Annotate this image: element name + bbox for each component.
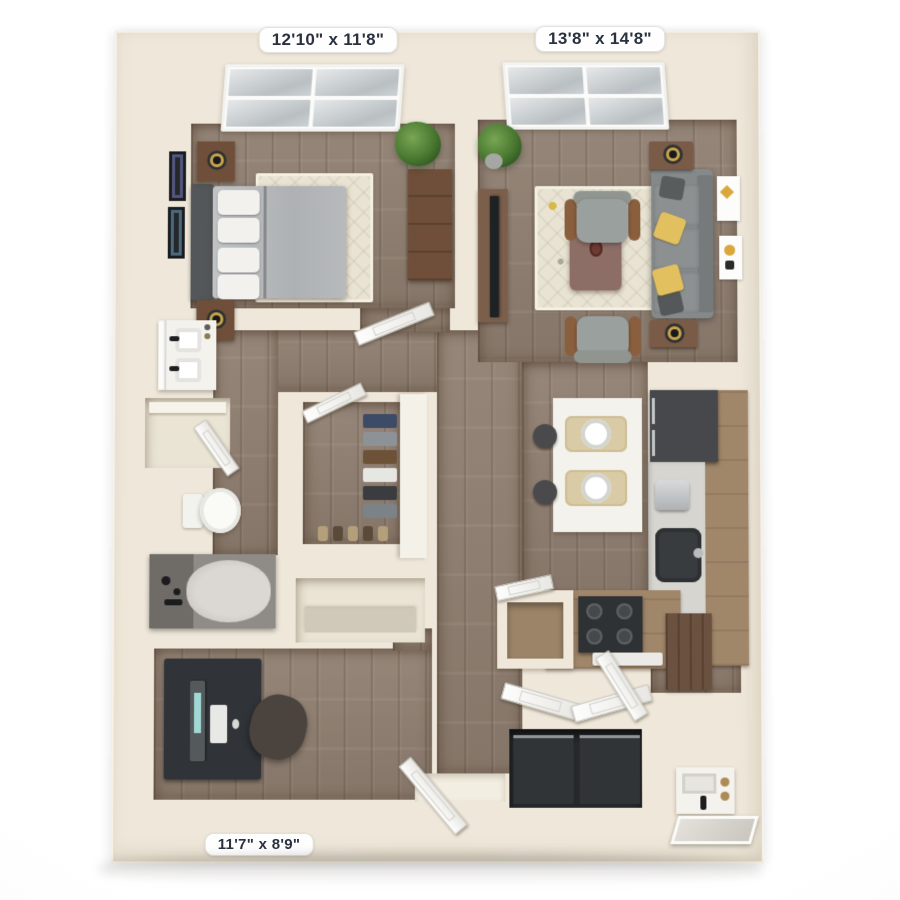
dresser bbox=[408, 169, 452, 280]
bathroom-sink bbox=[175, 328, 201, 352]
tub-fixture bbox=[173, 588, 180, 595]
powder-faucet bbox=[700, 796, 706, 810]
shoes bbox=[333, 526, 343, 541]
mouse bbox=[232, 719, 239, 729]
dimension-label-living-room: 13'8" x 14'8" bbox=[535, 26, 665, 52]
bed-pillow bbox=[218, 190, 260, 215]
powder-bottle bbox=[720, 792, 729, 801]
bed-pillow bbox=[217, 274, 259, 299]
corner-cabinet-interior bbox=[507, 602, 563, 658]
bar-stool bbox=[533, 424, 557, 448]
table-lamp bbox=[665, 323, 685, 343]
keyboard bbox=[210, 705, 227, 743]
toaster bbox=[655, 480, 689, 510]
sofa-pillow-dark bbox=[658, 175, 685, 201]
hanging-clothes bbox=[363, 468, 397, 482]
sink-faucet bbox=[169, 366, 179, 371]
window-pane bbox=[226, 100, 311, 127]
wall-art-shape bbox=[724, 245, 735, 256]
plate bbox=[581, 419, 611, 449]
hanging-clothes bbox=[363, 432, 397, 446]
hanging-clothes bbox=[363, 504, 397, 518]
tub-faucet bbox=[164, 599, 182, 605]
accent-chair-arm bbox=[565, 316, 577, 356]
tub-fixture bbox=[161, 576, 170, 585]
shoes bbox=[378, 526, 388, 541]
window-pane bbox=[586, 67, 662, 94]
refrigerator bbox=[650, 390, 718, 462]
table-lamp bbox=[663, 144, 683, 164]
bed-duvet-fold bbox=[263, 186, 266, 298]
bathtub-basin bbox=[186, 560, 270, 622]
bathroom-sink bbox=[175, 358, 201, 382]
plate bbox=[581, 473, 611, 503]
hanging-clothes bbox=[363, 450, 397, 464]
window-pane bbox=[228, 69, 313, 96]
sofa-back-cushions bbox=[697, 175, 713, 312]
storage-shelf bbox=[305, 608, 416, 632]
shoes bbox=[318, 526, 328, 541]
shoes bbox=[363, 526, 373, 541]
fridge-handle bbox=[652, 430, 655, 456]
hanging-clothes bbox=[363, 486, 397, 500]
linen-shelf bbox=[149, 402, 226, 413]
closet-shelf-unit bbox=[400, 394, 427, 558]
coffee-table-decor bbox=[590, 241, 603, 257]
dryer bbox=[580, 735, 640, 804]
vanity-bottle bbox=[204, 333, 210, 339]
burner bbox=[616, 603, 632, 619]
kitchen-faucet bbox=[693, 548, 703, 558]
tv bbox=[490, 196, 499, 317]
entry-closet-door bbox=[666, 613, 712, 689]
bar-stool bbox=[533, 480, 557, 504]
vanity-mirror bbox=[158, 320, 166, 390]
powder-sink bbox=[682, 773, 716, 793]
burner bbox=[586, 628, 602, 644]
floor-plan bbox=[111, 31, 764, 864]
plant-pot bbox=[485, 153, 503, 169]
wall-picture bbox=[169, 151, 186, 201]
bedroom-window bbox=[221, 64, 405, 131]
table-lamp bbox=[207, 150, 227, 170]
accent-chair-arm bbox=[629, 316, 641, 356]
toilet-bowl bbox=[200, 488, 241, 533]
vanity-bottle bbox=[204, 324, 210, 330]
shoes bbox=[348, 526, 358, 541]
window-pane bbox=[313, 100, 398, 127]
bed-pillow bbox=[218, 248, 260, 273]
fridge-handle bbox=[652, 398, 655, 424]
shower-rod bbox=[150, 555, 276, 557]
powder-bottle bbox=[720, 777, 729, 786]
bed-pillow bbox=[218, 218, 260, 243]
accent-chair-arm bbox=[565, 199, 577, 241]
accent-chair-back bbox=[574, 350, 632, 363]
window-pane bbox=[510, 98, 586, 125]
accent-chair-seat bbox=[576, 199, 628, 243]
powder-mirror bbox=[670, 816, 758, 844]
bedroom-plant bbox=[395, 122, 441, 167]
floorplan-page: { "image_type": "3D top-down rendering o… bbox=[0, 0, 900, 900]
dimension-label-den: 11'7" x 8'9" bbox=[205, 833, 314, 856]
ground-shadow bbox=[100, 854, 762, 884]
monitor-screen bbox=[194, 693, 201, 733]
hanging-clothes bbox=[363, 414, 397, 428]
washer bbox=[513, 735, 573, 804]
burner bbox=[586, 603, 602, 619]
window-pane bbox=[315, 69, 399, 96]
wall-picture bbox=[168, 207, 185, 259]
window-pane bbox=[508, 67, 584, 94]
wall-art-shape bbox=[725, 261, 734, 270]
wall-art bbox=[719, 236, 742, 280]
dimension-label-bedroom: 12'10" x 11'8" bbox=[259, 27, 398, 53]
living-room-window bbox=[502, 62, 669, 129]
accent-chair-arm bbox=[628, 199, 640, 241]
bed-headboard bbox=[191, 184, 214, 300]
window-pane bbox=[588, 98, 664, 125]
wall-art bbox=[717, 176, 740, 221]
corridor-floor bbox=[437, 330, 522, 773]
sink-faucet bbox=[169, 336, 179, 341]
burner bbox=[616, 628, 632, 644]
